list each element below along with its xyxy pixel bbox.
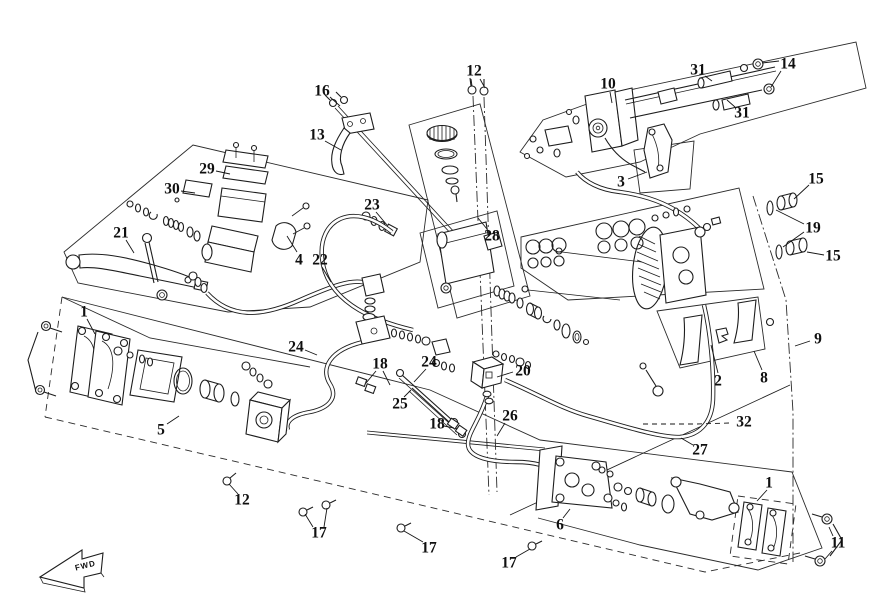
callout-label-28: 28 [484, 228, 500, 245]
callout-label-9: 9 [814, 331, 822, 348]
callout-label-12: 12 [466, 63, 482, 80]
callout-label-29: 29 [199, 161, 215, 178]
pipe-24-right [402, 375, 452, 420]
callout-label-18: 18 [429, 416, 445, 433]
pad-spring [716, 328, 728, 343]
brake-pad-left [680, 315, 702, 365]
adjuster-nut-14a [753, 59, 763, 69]
callout-leader-27 [681, 438, 693, 445]
callout-leader-14 [771, 71, 781, 87]
callout-label-1: 1 [80, 304, 88, 321]
callout-label-24: 24 [288, 339, 304, 356]
callout-label-26: 26 [502, 408, 518, 425]
callout-label-15: 15 [825, 248, 841, 265]
bolt-12-bottom [223, 477, 231, 485]
callout-leader-6 [563, 509, 570, 518]
callout-leader-15 [794, 185, 809, 199]
caliper-piston-upper [767, 193, 797, 215]
callout-label-1: 1 [765, 475, 773, 492]
callout-label-22: 22 [312, 252, 328, 269]
callout-label-23: 23 [364, 197, 380, 214]
cam-pulley [589, 119, 607, 137]
callout-label-24: 24 [421, 354, 437, 371]
callout-leader-26 [497, 423, 505, 436]
diaphragm [442, 166, 458, 174]
br-bracket-arm [672, 478, 738, 520]
reservoir-diaphragm-plate [223, 166, 268, 184]
callout-leader-24 [414, 369, 426, 382]
callout-label-17: 17 [311, 525, 327, 542]
hose-clamp-18a [356, 377, 367, 387]
callout-leader-18 [366, 371, 376, 383]
callout-label-20: 20 [515, 363, 531, 380]
alignment-line-mid-b [367, 434, 545, 451]
callout-label-13: 13 [309, 127, 325, 144]
callout-label-17: 17 [421, 540, 437, 557]
bleeder-valve [711, 217, 720, 225]
lever-pivot-bolt [143, 234, 152, 243]
diagram-canvas: FWD 161312103114313293021422232815191592… [0, 0, 872, 609]
callout-label-12: 12 [234, 492, 250, 509]
pad-pin-ball [653, 386, 663, 396]
callout-label-15: 15 [808, 171, 824, 188]
callout-leader-17 [516, 549, 530, 557]
bolt-17b [397, 524, 405, 532]
circlip [149, 212, 157, 219]
alignment-line-12a [473, 96, 489, 495]
br-o-ring [662, 495, 674, 513]
callout-leader-17 [404, 531, 423, 542]
lever-13-arm [332, 128, 350, 175]
callout-label-17: 17 [501, 555, 517, 572]
brake-pad-right [734, 300, 756, 343]
callout-label-25: 25 [392, 396, 408, 413]
bolt-12b [480, 87, 488, 95]
piston-seal-kit [526, 219, 645, 268]
cylinder-bore [202, 244, 212, 260]
rod-sleeve [658, 88, 677, 104]
callout-leader-9 [795, 341, 810, 346]
callout-label-6: 6 [556, 517, 564, 534]
bolt-17a2 [322, 501, 330, 509]
callout-leader-32 [640, 423, 729, 424]
callout-leader-15 [807, 252, 824, 255]
bolt-bracket-curve [28, 332, 38, 392]
bolt-12a [468, 86, 476, 94]
callout-label-10: 10 [600, 76, 616, 93]
callout-label-14: 14 [780, 56, 796, 73]
callout-label-11: 11 [831, 535, 846, 552]
callout-label-3: 3 [617, 174, 625, 191]
callout-label-31: 31 [690, 62, 706, 79]
callout-label-30: 30 [164, 181, 180, 198]
reservoir-body [218, 188, 266, 222]
callout-label-2: 2 [714, 373, 722, 390]
lever-ball-end [66, 255, 80, 269]
fl-caliper-body [246, 400, 282, 442]
callout-label-5: 5 [157, 422, 165, 439]
callout-leader-24 [305, 350, 317, 355]
caliper-body [660, 227, 706, 303]
brake-lever [79, 254, 198, 288]
boundary-lower-top-edge [62, 297, 792, 472]
callout-label-19: 19 [805, 220, 821, 237]
elbow-fitting [362, 274, 384, 296]
front-master-cylinder-assembly [66, 143, 310, 301]
cap-knurling [430, 126, 454, 142]
callout-leader-21 [126, 240, 134, 253]
bolt-16a [330, 100, 337, 107]
boundary-lower-left-edge [45, 297, 62, 417]
hose-27 [505, 305, 713, 437]
mount-bracket [545, 126, 572, 146]
callout-leader-8 [754, 351, 762, 370]
callout-label-4: 4 [295, 252, 303, 269]
callout-label-16: 16 [314, 83, 330, 100]
callout-label-27: 27 [692, 442, 708, 459]
reservoir-gasket [183, 180, 212, 197]
bolt-16b [341, 97, 348, 104]
adjuster-nut-14b [764, 84, 774, 94]
callout-label-18: 18 [372, 356, 388, 373]
fwd-marker: FWD [40, 550, 104, 592]
callout-leader-19 [776, 210, 804, 224]
bolt-17c [528, 542, 536, 550]
tee-fitting [356, 316, 390, 344]
callout-label-8: 8 [760, 370, 768, 387]
mount-bolt-11a [822, 514, 832, 524]
reservoir-cover-plate [223, 150, 268, 168]
lever-pivot-nut [157, 290, 167, 300]
callout-label-31: 31 [734, 105, 750, 122]
callout-label-32: 32 [736, 414, 752, 431]
hose-23 [322, 216, 413, 330]
callout-leader-5 [167, 416, 179, 424]
callout-label-21: 21 [113, 225, 129, 242]
loose-fasteners [223, 78, 542, 550]
fwd-arrow [40, 550, 103, 588]
mount-bolt-11b [815, 556, 825, 566]
